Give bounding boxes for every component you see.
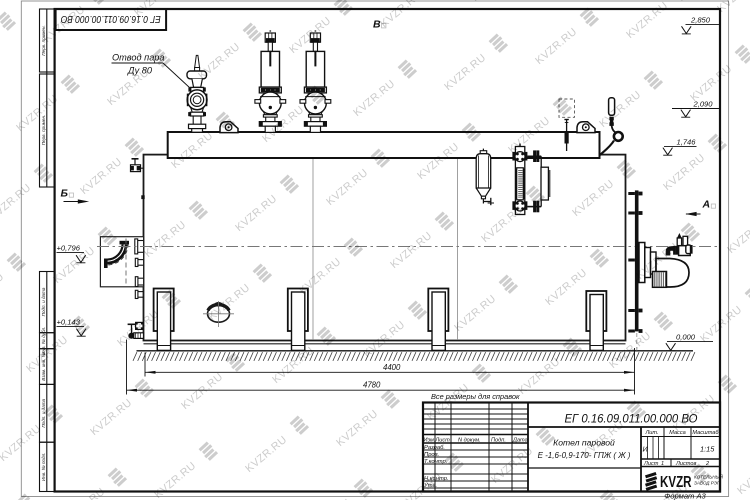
svg-text:Подп. и дата: Подп. и дата [41,287,46,316]
svg-text:Масштаб: Масштаб [692,430,719,436]
svg-text:2,850: 2,850 [690,15,711,24]
svg-text:Пров.: Пров. [424,452,439,458]
svg-text:1,746: 1,746 [677,138,697,147]
svg-text:Дата: Дата [512,438,528,444]
svg-text:4780: 4780 [363,381,381,390]
svg-text:Б: Б [61,188,69,200]
svg-text:ЗАВОД РЭП: ЗАВОД РЭП [694,481,721,486]
svg-text:Инв. № подл.: Инв. № подл. [41,453,46,482]
svg-text:Перв. примен.: Перв. примен. [41,115,46,146]
svg-text:N докум.: N докум. [458,438,481,444]
svg-text:Подп.: Подп. [491,438,506,444]
svg-text:Лист: Лист [643,461,659,467]
svg-text:Разраб.: Разраб. [424,445,445,451]
svg-text:А: А [702,199,711,211]
svg-text:0,000: 0,000 [676,333,696,342]
svg-text:1: 1 [661,461,664,467]
svg-text:Т.контр.: Т.контр. [424,459,447,465]
svg-text:1:15: 1:15 [700,445,715,454]
svg-text:Изм.Лист: Изм.Лист [424,438,451,444]
svg-text:И: И [643,445,649,454]
svg-text:+0,796: +0,796 [57,243,81,252]
svg-text:Листов: Листов [675,461,696,467]
svg-text:Лит.: Лит. [644,430,658,436]
svg-text:4400: 4400 [383,363,401,372]
